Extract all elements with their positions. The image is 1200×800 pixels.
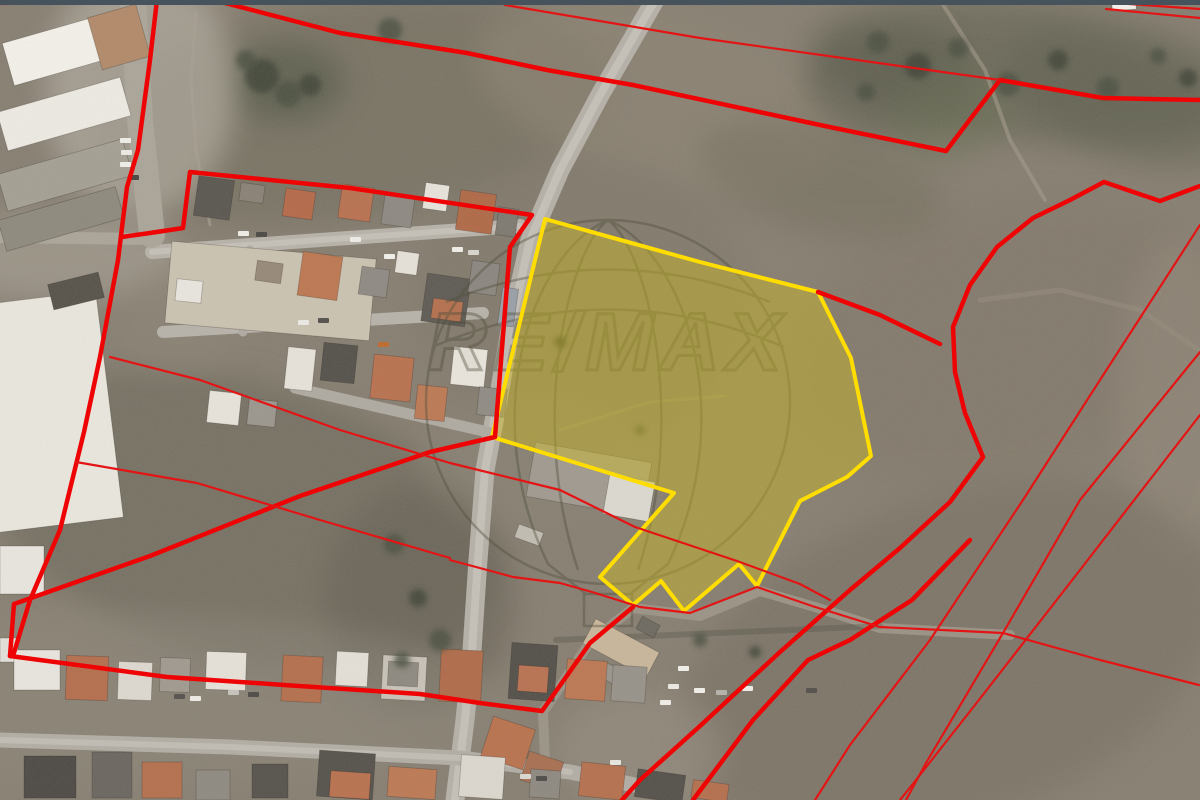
- aerial-photo-canvas: RE/MAX: [0, 0, 1200, 800]
- top-edge-strip: [0, 0, 1200, 5]
- satellite-map: RE/MAX: [0, 0, 1200, 800]
